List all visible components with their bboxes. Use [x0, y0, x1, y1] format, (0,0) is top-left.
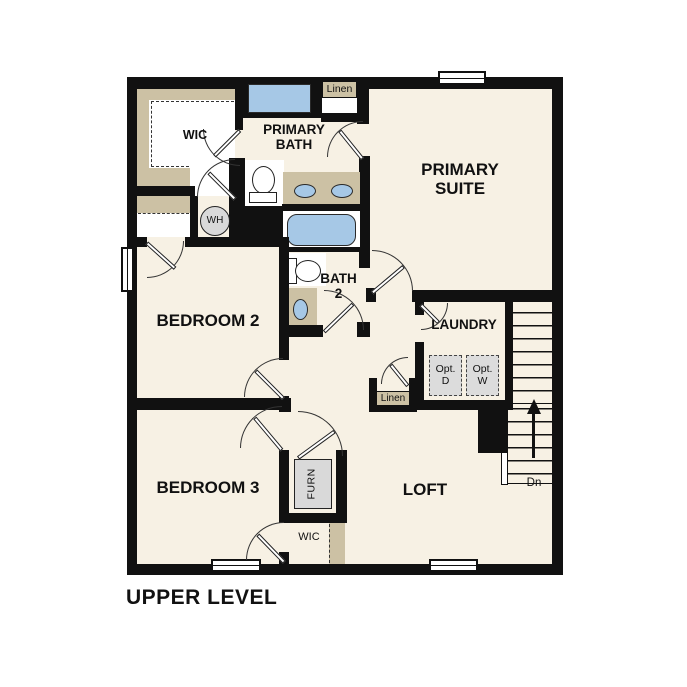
wall: [505, 298, 513, 410]
stair-treads: [513, 312, 552, 404]
shelf-dashed-line: [151, 101, 234, 102]
furnace-unit: FURN: [294, 459, 332, 509]
wall: [415, 342, 424, 402]
water-heater-label: WH: [207, 215, 224, 226]
wall: [279, 513, 347, 523]
floor-plan-canvas: Linen WH FURN Linen: [0, 0, 687, 687]
stairs-down-label: Dn: [520, 477, 548, 490]
sink: [331, 184, 353, 198]
closet-shelf: [137, 89, 235, 100]
opt-washer-label: Opt. W: [470, 364, 496, 388]
wall: [415, 400, 513, 410]
wall: [359, 156, 370, 268]
wall: [137, 186, 195, 196]
shelf-dashed-line: [151, 101, 152, 167]
furnace-label: FURN: [307, 468, 319, 499]
room-label-bedroom-2: BEDROOM 2: [133, 311, 283, 330]
toilet-bowl: [252, 166, 275, 194]
linen-closet-box: Linen: [322, 81, 357, 98]
optional-dryer: Opt. D: [429, 355, 462, 396]
wall: [279, 237, 289, 360]
window-symbol: [438, 71, 486, 85]
wall: [552, 77, 563, 575]
room-label-bedroom-3: BEDROOM 3: [133, 478, 283, 497]
wall: [127, 237, 147, 247]
wall: [321, 113, 360, 122]
room-label-wic-upper: WIC: [175, 128, 215, 142]
closet-shelf: [137, 196, 190, 213]
linen-upper-label: Linen: [327, 84, 353, 96]
stair-arrow-shaft: [532, 413, 535, 458]
wall: [282, 204, 360, 211]
shower: [248, 84, 311, 113]
wall: [127, 398, 279, 410]
room-label-laundry: LAUNDRY: [420, 317, 508, 332]
wall: [185, 237, 279, 247]
wall: [282, 247, 360, 252]
stair-landing-wall: [478, 410, 508, 453]
room-label-wic-lower: WIC: [290, 531, 328, 543]
opt-dryer-label: Opt. D: [433, 364, 459, 388]
stair-arrow-up-icon: [527, 399, 541, 414]
closet-shelf: [329, 523, 345, 564]
stair-treads: [508, 408, 552, 484]
plan-title: UPPER LEVEL: [126, 586, 386, 610]
linen-hall-label: Linen: [381, 393, 405, 404]
toilet-tank: [249, 192, 277, 203]
linen-closet-box: Linen: [376, 391, 410, 406]
shelf-dashed-line: [329, 524, 330, 563]
room-label-primary-bath: PRIMARY BATH: [250, 122, 338, 152]
optional-washer: Opt. W: [466, 355, 499, 396]
closet-shelf: [137, 168, 190, 186]
shelf-dashed-line: [138, 213, 189, 214]
closet-floor: [137, 213, 190, 237]
bathtub: [287, 214, 356, 246]
room-label-primary-suite: PRIMARY SUITE: [400, 160, 520, 198]
window-symbol: [211, 559, 261, 572]
wall: [190, 196, 198, 240]
window-symbol: [121, 247, 134, 292]
room-label-loft: LOFT: [385, 480, 465, 499]
wall: [412, 290, 563, 302]
window-symbol: [429, 559, 478, 572]
shelf-dashed-line: [151, 166, 189, 167]
water-heater: WH: [200, 206, 230, 236]
sink: [294, 184, 316, 198]
stair-railing: [501, 452, 508, 485]
room-label-bath-2: BATH 2: [316, 271, 361, 301]
wall: [127, 564, 563, 575]
wall: [357, 77, 369, 124]
sink: [293, 299, 308, 320]
